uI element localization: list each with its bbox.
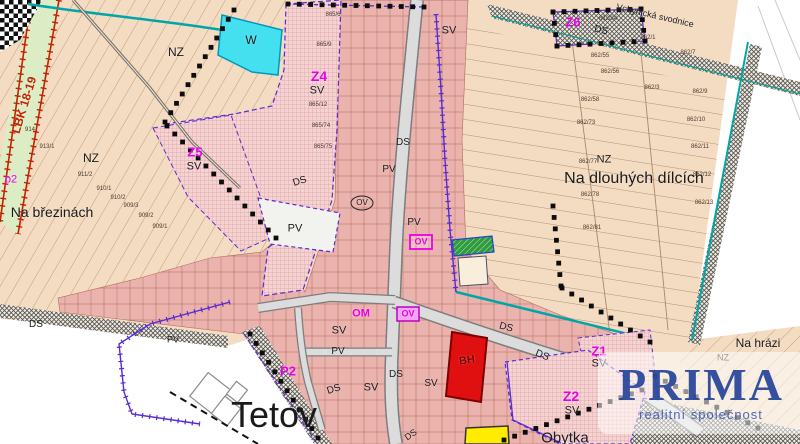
plot-zs-green bbox=[452, 236, 494, 256]
zoning-map-viewport[interactable]: NZNZNa březináchWZ4SVZ5SVSVZ6NZNa dlouhý… bbox=[0, 0, 800, 444]
prima-logo-subtitle: realitní společnost bbox=[639, 407, 763, 422]
label-box-ov2 bbox=[397, 307, 419, 321]
plot-bh-red bbox=[446, 332, 487, 402]
prima-watermark: PRIMA realitní společnost bbox=[598, 352, 800, 434]
prima-logo-text: PRIMA bbox=[618, 364, 784, 405]
label-box-ov bbox=[410, 235, 432, 249]
plot-cream bbox=[458, 256, 488, 286]
